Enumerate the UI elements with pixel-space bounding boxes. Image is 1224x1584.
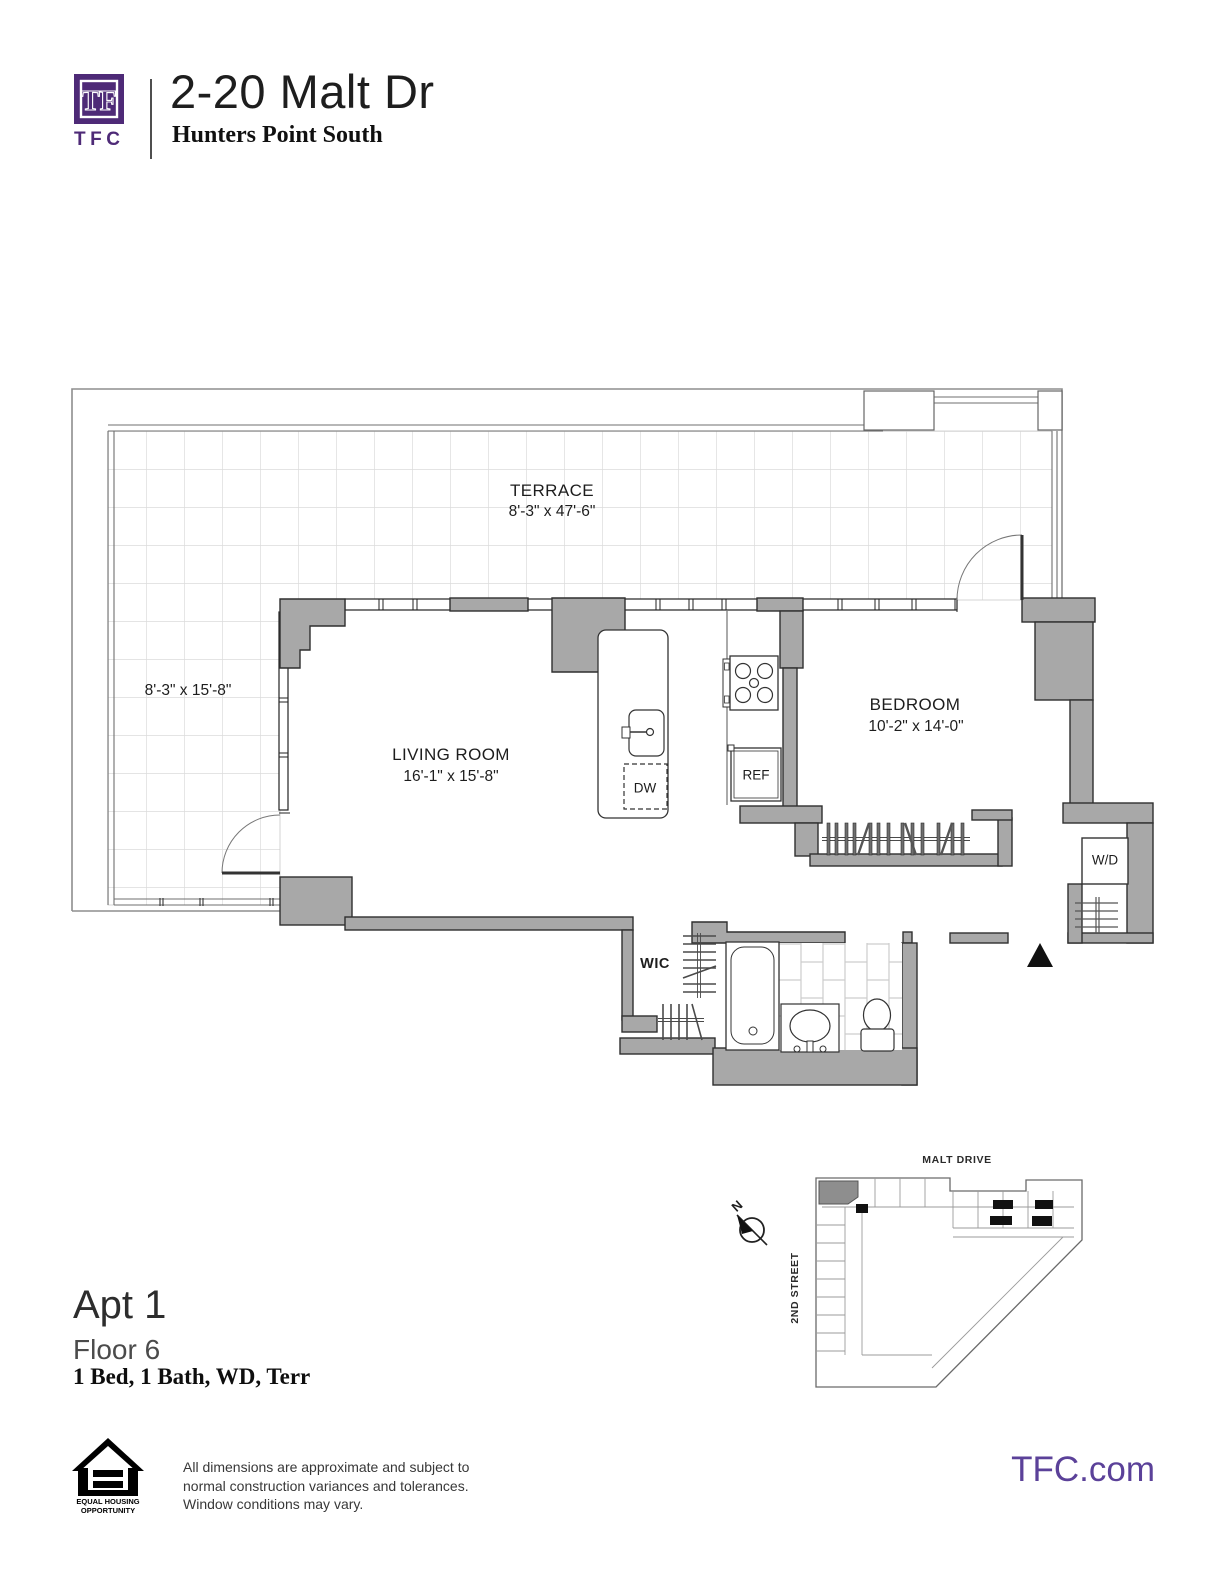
- disclaimer-line3: Window conditions may vary.: [183, 1495, 469, 1514]
- floor-plan-drawing: [0, 0, 1224, 1584]
- disclaimer-line1: All dimensions are approximate and subje…: [183, 1458, 469, 1477]
- wic-label: WIC: [640, 956, 670, 972]
- terrace-label: TERRACE: [510, 481, 594, 501]
- disclaimer-text: All dimensions are approximate and subje…: [183, 1458, 469, 1514]
- washer-dryer-label: W/D: [1092, 853, 1118, 868]
- site-plan: [816, 1178, 1082, 1387]
- highlighted-unit: [819, 1181, 858, 1204]
- terrace-dims: 8'-3" x 47'-6": [509, 503, 596, 521]
- terrace-side-dims: 8'-3" x 15'-8": [145, 682, 232, 700]
- website-link[interactable]: TFC.com: [1011, 1450, 1155, 1490]
- entry-marker-icon: [1027, 943, 1053, 967]
- refrigerator-label: REF: [743, 768, 770, 783]
- apartment-walls: [280, 598, 1153, 1085]
- bedroom-dims: 10'-2" x 14'-0": [868, 718, 963, 736]
- vanity-sink-icon: [781, 1004, 839, 1052]
- living-room-label: LIVING ROOM: [392, 745, 510, 765]
- disclaimer-line2: normal construction variances and tolera…: [183, 1477, 469, 1496]
- bedroom-closet-rod: [822, 823, 970, 855]
- bathtub-icon: [726, 942, 779, 1050]
- compass-icon: [737, 1215, 767, 1245]
- unit-features: 1 Bed, 1 Bath, WD, Terr: [73, 1364, 310, 1390]
- bedroom-label: BEDROOM: [870, 695, 961, 715]
- eho-line2: OPPORTUNITY: [81, 1506, 135, 1515]
- equal-housing-icon: [70, 1438, 146, 1500]
- floor-plan-sheet: TF TFC 2-20 Malt Dr Hunters Point South: [0, 0, 1224, 1584]
- floor-number: Floor 6: [73, 1334, 160, 1366]
- wic-rod: [658, 933, 716, 1040]
- street-label-malt-drive: MALT DRIVE: [922, 1154, 991, 1166]
- apartment-number: Apt 1: [73, 1283, 166, 1328]
- elevator-core-icon: [856, 1200, 1053, 1226]
- equal-housing-text: EQUAL HOUSING OPPORTUNITY: [70, 1498, 146, 1515]
- living-room-dims: 16'-1" x 15'-8": [403, 768, 498, 786]
- street-label-2nd-street: 2ND STREET: [789, 1252, 801, 1323]
- dishwasher-label: DW: [634, 781, 657, 796]
- stove-icon: [723, 656, 778, 710]
